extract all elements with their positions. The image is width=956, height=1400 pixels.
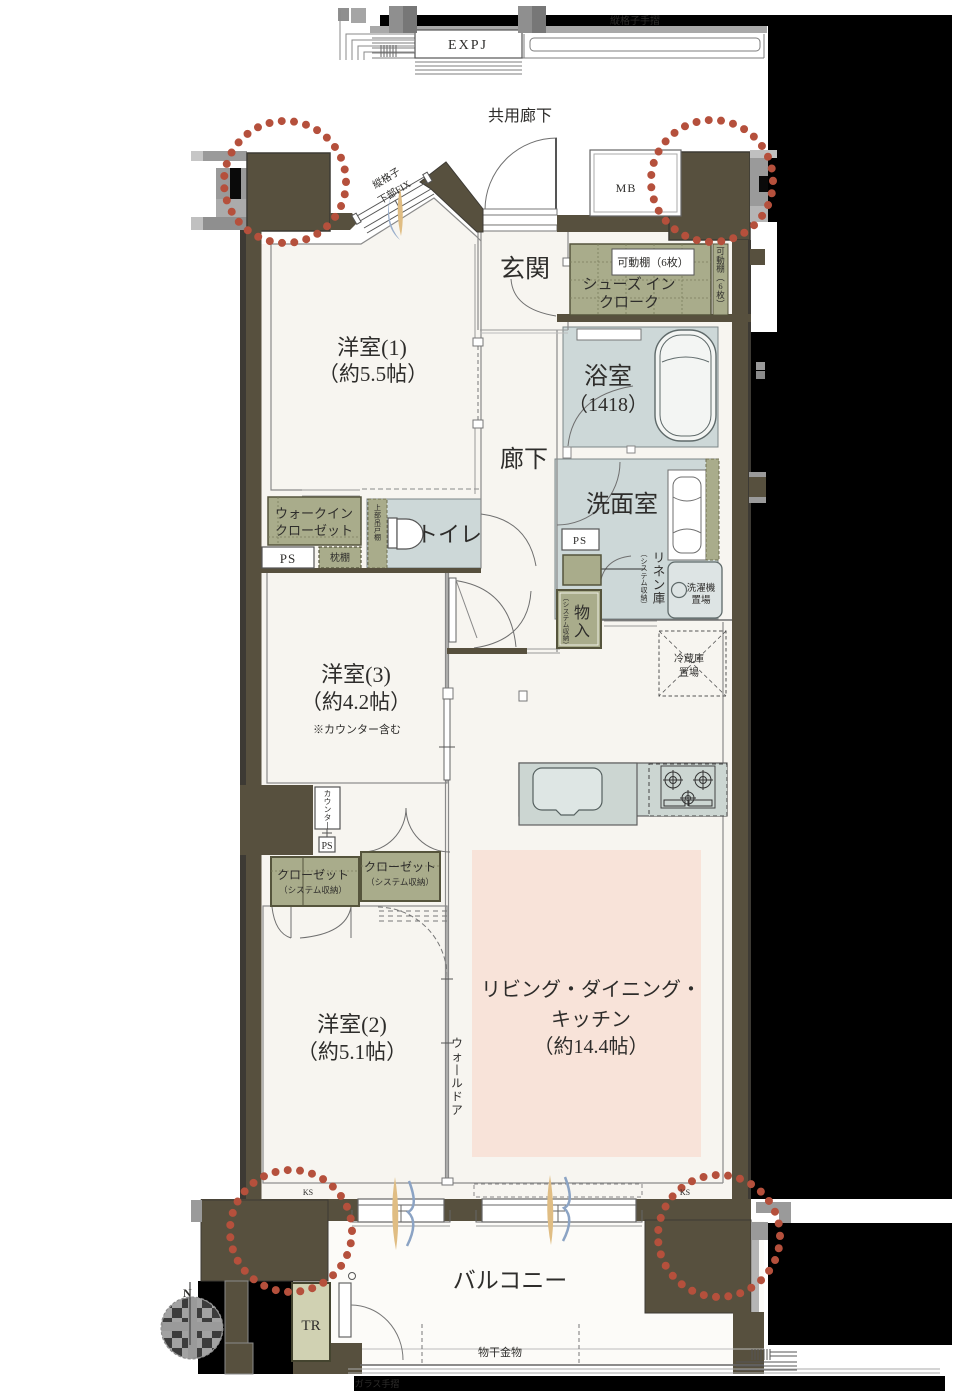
svg-text:（システム収納）: （システム収納） — [279, 885, 347, 895]
svg-text:洋室(3): 洋室(3) — [321, 662, 391, 687]
svg-text:リビング・ダイニング・: リビング・ダイニング・ — [481, 978, 701, 1001]
svg-text:バルコニー: バルコニー — [453, 1268, 568, 1293]
svg-text:洗面室: 洗面室 — [586, 491, 658, 518]
svg-text:入: 入 — [574, 623, 590, 640]
svg-text:ウ: ウ — [451, 1037, 463, 1050]
svg-text:クローク: クローク — [599, 294, 659, 311]
svg-text:棚: 棚 — [374, 533, 381, 542]
svg-text:共用廊下: 共用廊下 — [488, 107, 552, 125]
svg-text:クローゼット: クローゼット — [275, 523, 353, 538]
svg-text:N: N — [183, 1286, 192, 1300]
svg-text:納: 納 — [563, 633, 570, 642]
svg-text:ウォークイン: ウォークイン — [275, 506, 353, 521]
svg-text:（約4.2帖）: （約4.2帖） — [301, 690, 411, 714]
svg-text:ネ: ネ — [653, 565, 666, 579]
svg-text:丨: 丨 — [451, 1064, 463, 1077]
svg-text:洋室(1): 洋室(1) — [337, 335, 407, 360]
svg-text:縦格子手摺: 縦格子手摺 — [610, 14, 660, 27]
svg-text:置場: 置場 — [691, 594, 711, 606]
svg-text:ル: ル — [451, 1078, 463, 1090]
svg-text:トイレ: トイレ — [416, 522, 482, 547]
svg-text:PS: PS — [280, 551, 296, 566]
svg-text:︶: ︶ — [641, 600, 648, 609]
svg-text:浴室: 浴室 — [584, 363, 632, 390]
svg-text:ア: ア — [451, 1105, 463, 1117]
svg-text:洗濯機: 洗濯機 — [687, 582, 716, 594]
svg-text:PS: PS — [573, 535, 587, 547]
svg-text:KS: KS — [680, 1188, 690, 1197]
svg-text:置場: 置場 — [679, 666, 699, 679]
svg-text:MB: MB — [616, 181, 637, 195]
svg-text:物干金物: 物干金物 — [478, 1345, 522, 1359]
svg-text:EXPJ: EXPJ — [448, 38, 488, 53]
svg-text:物: 物 — [574, 604, 590, 622]
svg-text:シューズ イン: シューズ イン — [582, 276, 675, 293]
svg-text:ガラス手摺: ガラス手摺 — [355, 1378, 400, 1389]
svg-text:ン: ン — [653, 578, 666, 592]
svg-text:枕棚: 枕棚 — [330, 551, 350, 564]
svg-text:庫: 庫 — [653, 592, 666, 606]
svg-text:リ: リ — [653, 551, 666, 565]
svg-text:（システム収納）: （システム収納） — [366, 877, 434, 887]
svg-text:（約14.4帖）: （約14.4帖） — [534, 1035, 649, 1058]
svg-text:クローゼット: クローゼット — [364, 860, 436, 874]
svg-text:PS: PS — [321, 841, 332, 852]
svg-text:KS: KS — [303, 1188, 313, 1197]
svg-text:キッチン: キッチン — [551, 1009, 631, 1031]
svg-text:ド: ド — [451, 1092, 463, 1104]
svg-text:丨: 丨 — [324, 821, 332, 830]
svg-text:洋室(2): 洋室(2) — [317, 1012, 387, 1037]
svg-text:クローゼット: クローゼット — [277, 868, 349, 882]
svg-text:（約5.1帖）: （約5.1帖） — [297, 1040, 407, 1064]
svg-text:可動棚（6枚）: 可動棚（6枚） — [617, 255, 689, 269]
svg-text:※カウンター含む: ※カウンター含む — [313, 722, 401, 736]
svg-text:廊下: 廊下 — [500, 446, 548, 473]
svg-text:冷蔵庫: 冷蔵庫 — [674, 652, 704, 665]
svg-text:︶: ︶ — [716, 299, 725, 309]
svg-text:TR: TR — [301, 1318, 320, 1334]
svg-text:（約5.5帖）: （約5.5帖） — [318, 362, 428, 386]
svg-text:（1418）: （1418） — [568, 393, 648, 416]
svg-text:玄関: 玄関 — [500, 255, 550, 283]
svg-text:ォ: ォ — [451, 1051, 463, 1063]
svg-text:︶: ︶ — [563, 640, 570, 649]
